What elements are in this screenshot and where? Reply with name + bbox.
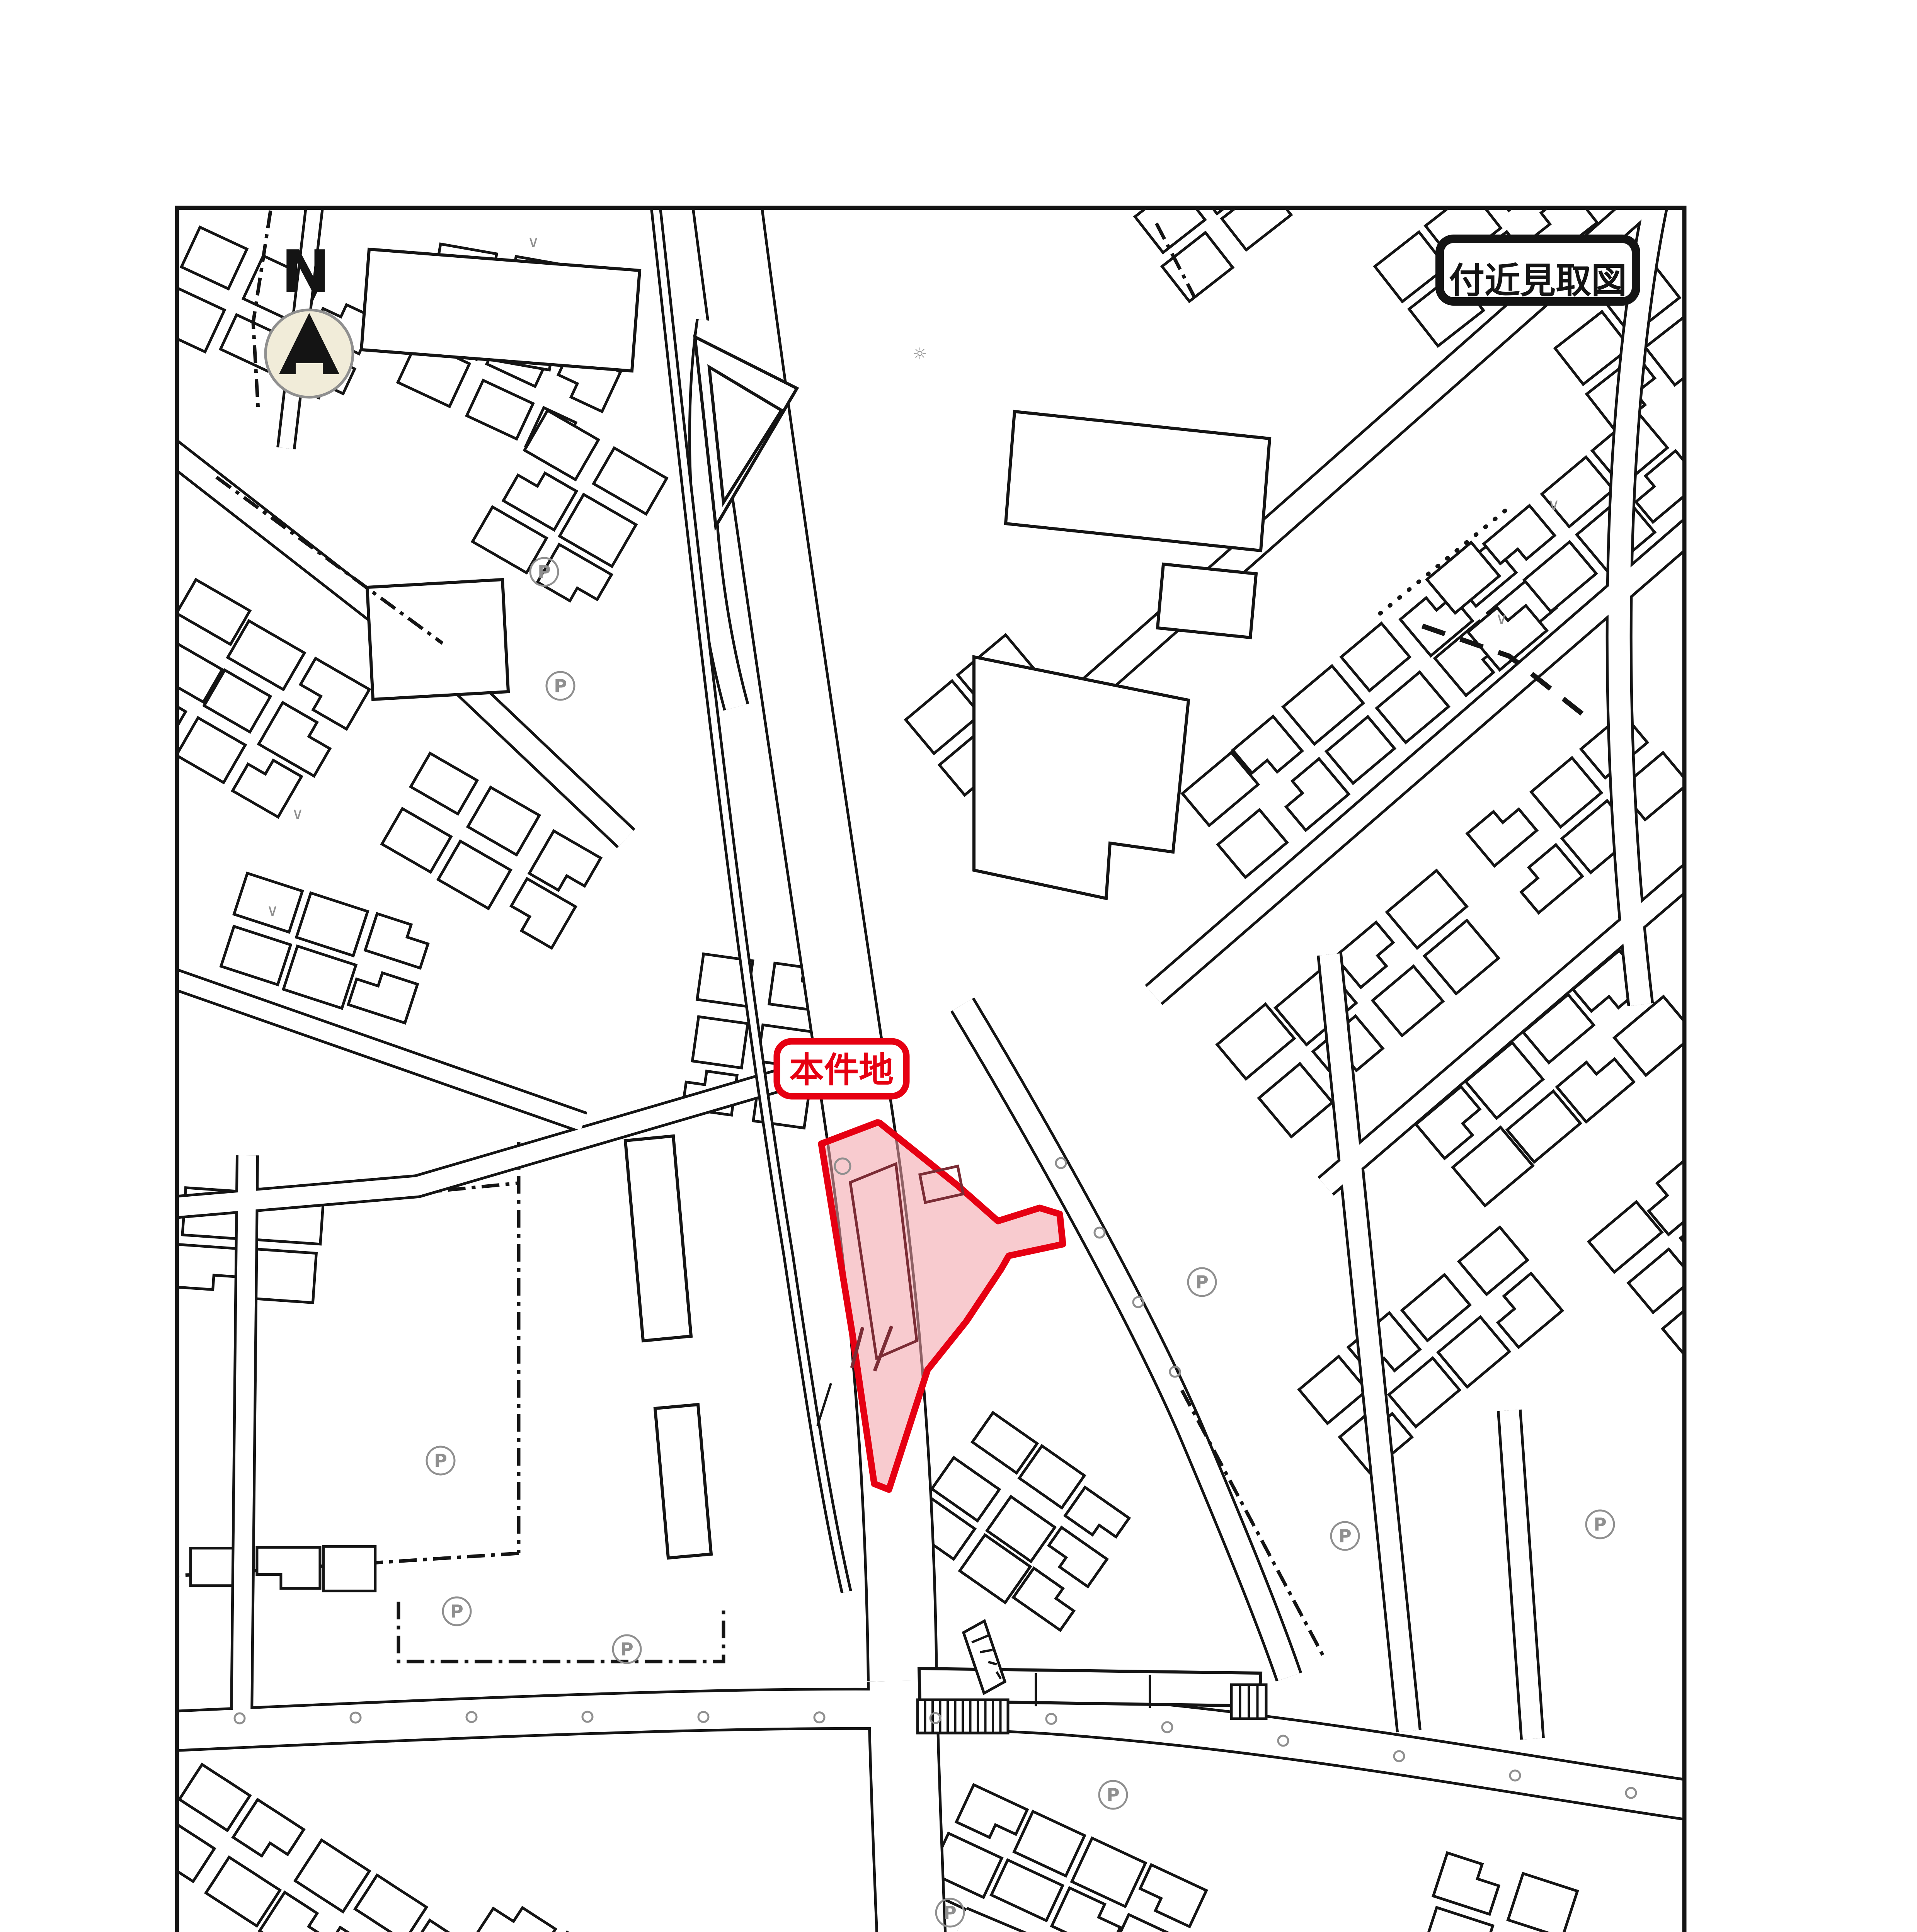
map-title-text: 付近見取図	[1449, 260, 1627, 301]
building	[1006, 412, 1270, 551]
subject-site-label-text: 本件地	[789, 1050, 894, 1090]
building	[233, 1799, 304, 1867]
building	[438, 841, 511, 909]
building	[1042, 1527, 1107, 1587]
building	[361, 249, 640, 371]
parking-letter: P	[450, 1601, 463, 1622]
survey-check-icon: ∨	[1496, 609, 1508, 628]
building	[972, 1413, 1037, 1473]
building	[320, 1927, 391, 1932]
building	[1389, 1358, 1460, 1427]
building	[157, 287, 225, 352]
building	[323, 1546, 375, 1591]
building	[1467, 798, 1537, 866]
parking-letter: P	[434, 1450, 447, 1471]
parking-letter: P	[554, 675, 567, 696]
building	[1508, 1873, 1578, 1932]
parking-letter: P	[1195, 1272, 1209, 1293]
building	[1484, 142, 1556, 211]
building	[1299, 1356, 1367, 1423]
building	[411, 753, 477, 814]
building	[283, 946, 356, 1009]
road-surface	[242, 1155, 247, 1718]
building	[1218, 810, 1287, 878]
parking-letter: P	[620, 1639, 633, 1660]
building	[179, 1764, 250, 1830]
building	[524, 410, 598, 480]
building	[1433, 1853, 1503, 1914]
road-surface	[1509, 1410, 1532, 1739]
building	[1512, 845, 1582, 913]
vicinity-map-canvas: PPPPPPPPPPPP∨∨∨∨∨☼ N 本件地	[0, 0, 1917, 1932]
building	[1134, 1865, 1206, 1927]
boundary-line	[398, 1602, 724, 1662]
parking-letter: P	[943, 1902, 957, 1923]
building	[655, 1405, 711, 1558]
building	[476, 1895, 555, 1932]
building	[1713, 1251, 1786, 1323]
building	[1341, 623, 1410, 691]
building	[1158, 564, 1256, 638]
building	[296, 893, 368, 956]
subject-site-label: 本件地	[777, 1041, 906, 1096]
building	[467, 380, 533, 439]
building	[1680, 1197, 1756, 1270]
building	[257, 1547, 320, 1588]
building	[1239, 99, 1309, 166]
boundary-line	[216, 477, 443, 643]
building	[1273, 141, 1347, 211]
building	[177, 580, 250, 645]
north-label: N	[281, 238, 330, 306]
building	[221, 926, 291, 985]
map-drawing: PPPPPPPPPPPP∨∨∨∨∨☼ N 本件地	[114, 97, 1798, 1932]
building	[692, 1017, 747, 1068]
building	[1187, 141, 1261, 214]
building	[355, 1875, 427, 1932]
building	[1259, 1064, 1332, 1137]
building	[956, 1785, 1027, 1847]
map-title-box: 付近見取図	[1440, 239, 1636, 301]
parcel-tick	[817, 1383, 831, 1426]
survey-check-icon: ∨	[267, 901, 279, 920]
building	[1663, 1295, 1732, 1363]
building	[176, 718, 245, 783]
survey-check-icon: ∨	[528, 232, 540, 251]
building	[1402, 1275, 1470, 1341]
building	[365, 913, 432, 968]
parking-letter: P	[1107, 1784, 1120, 1805]
building	[295, 1840, 369, 1912]
building	[1372, 966, 1443, 1036]
building	[382, 809, 451, 872]
building	[974, 657, 1188, 898]
building	[144, 1816, 215, 1881]
building	[1335, 922, 1402, 988]
building	[503, 879, 575, 948]
building	[172, 1244, 240, 1291]
survey-check-icon: ∨	[292, 804, 304, 823]
building	[1222, 184, 1291, 250]
building	[625, 1136, 691, 1341]
sun-mark-icon: ☼	[913, 344, 927, 363]
parking-letter: P	[538, 561, 551, 582]
building	[181, 227, 247, 289]
parking-letter: P	[1594, 1514, 1607, 1535]
building	[348, 966, 417, 1023]
survey-check-icon: ∨	[1548, 495, 1560, 514]
building	[1014, 1811, 1084, 1876]
building	[594, 448, 667, 514]
building	[468, 787, 539, 855]
north-triangle-notch	[296, 363, 323, 374]
parking-letter: P	[1338, 1526, 1352, 1546]
